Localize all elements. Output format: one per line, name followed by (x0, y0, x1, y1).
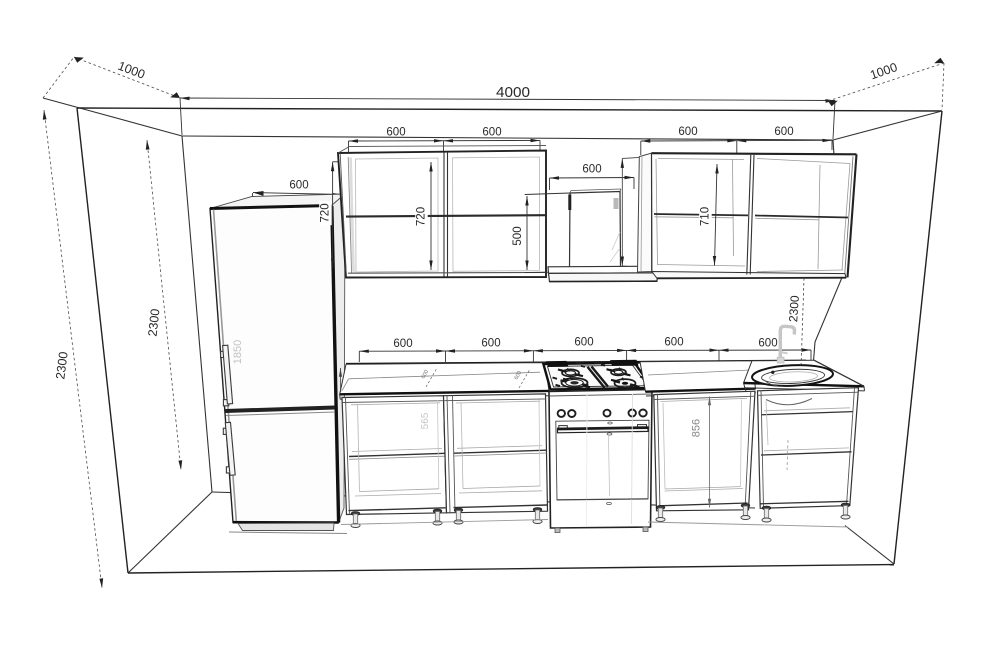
svg-text:2300: 2300 (786, 295, 802, 323)
svg-text:600: 600 (664, 337, 683, 349)
svg-text:600: 600 (758, 337, 777, 349)
svg-text:600: 600 (386, 127, 405, 139)
svg-text:720: 720 (320, 203, 332, 222)
svg-text:600: 600 (482, 126, 501, 138)
svg-text:600: 600 (678, 126, 697, 138)
svg-text:1850: 1850 (232, 340, 244, 364)
svg-text:710: 710 (700, 207, 712, 226)
svg-text:600: 600 (582, 164, 601, 176)
svg-text:600: 600 (481, 338, 500, 350)
svg-text:2300: 2300 (146, 308, 163, 337)
svg-text:720: 720 (416, 207, 428, 226)
svg-text:565: 565 (420, 412, 431, 429)
svg-text:500: 500 (512, 226, 524, 245)
svg-text:600: 600 (289, 180, 308, 192)
svg-text:600: 600 (393, 338, 412, 350)
svg-text:600: 600 (774, 126, 793, 138)
svg-text:856: 856 (691, 419, 703, 437)
svg-text:600: 600 (574, 337, 593, 349)
svg-text:4000: 4000 (496, 84, 530, 101)
